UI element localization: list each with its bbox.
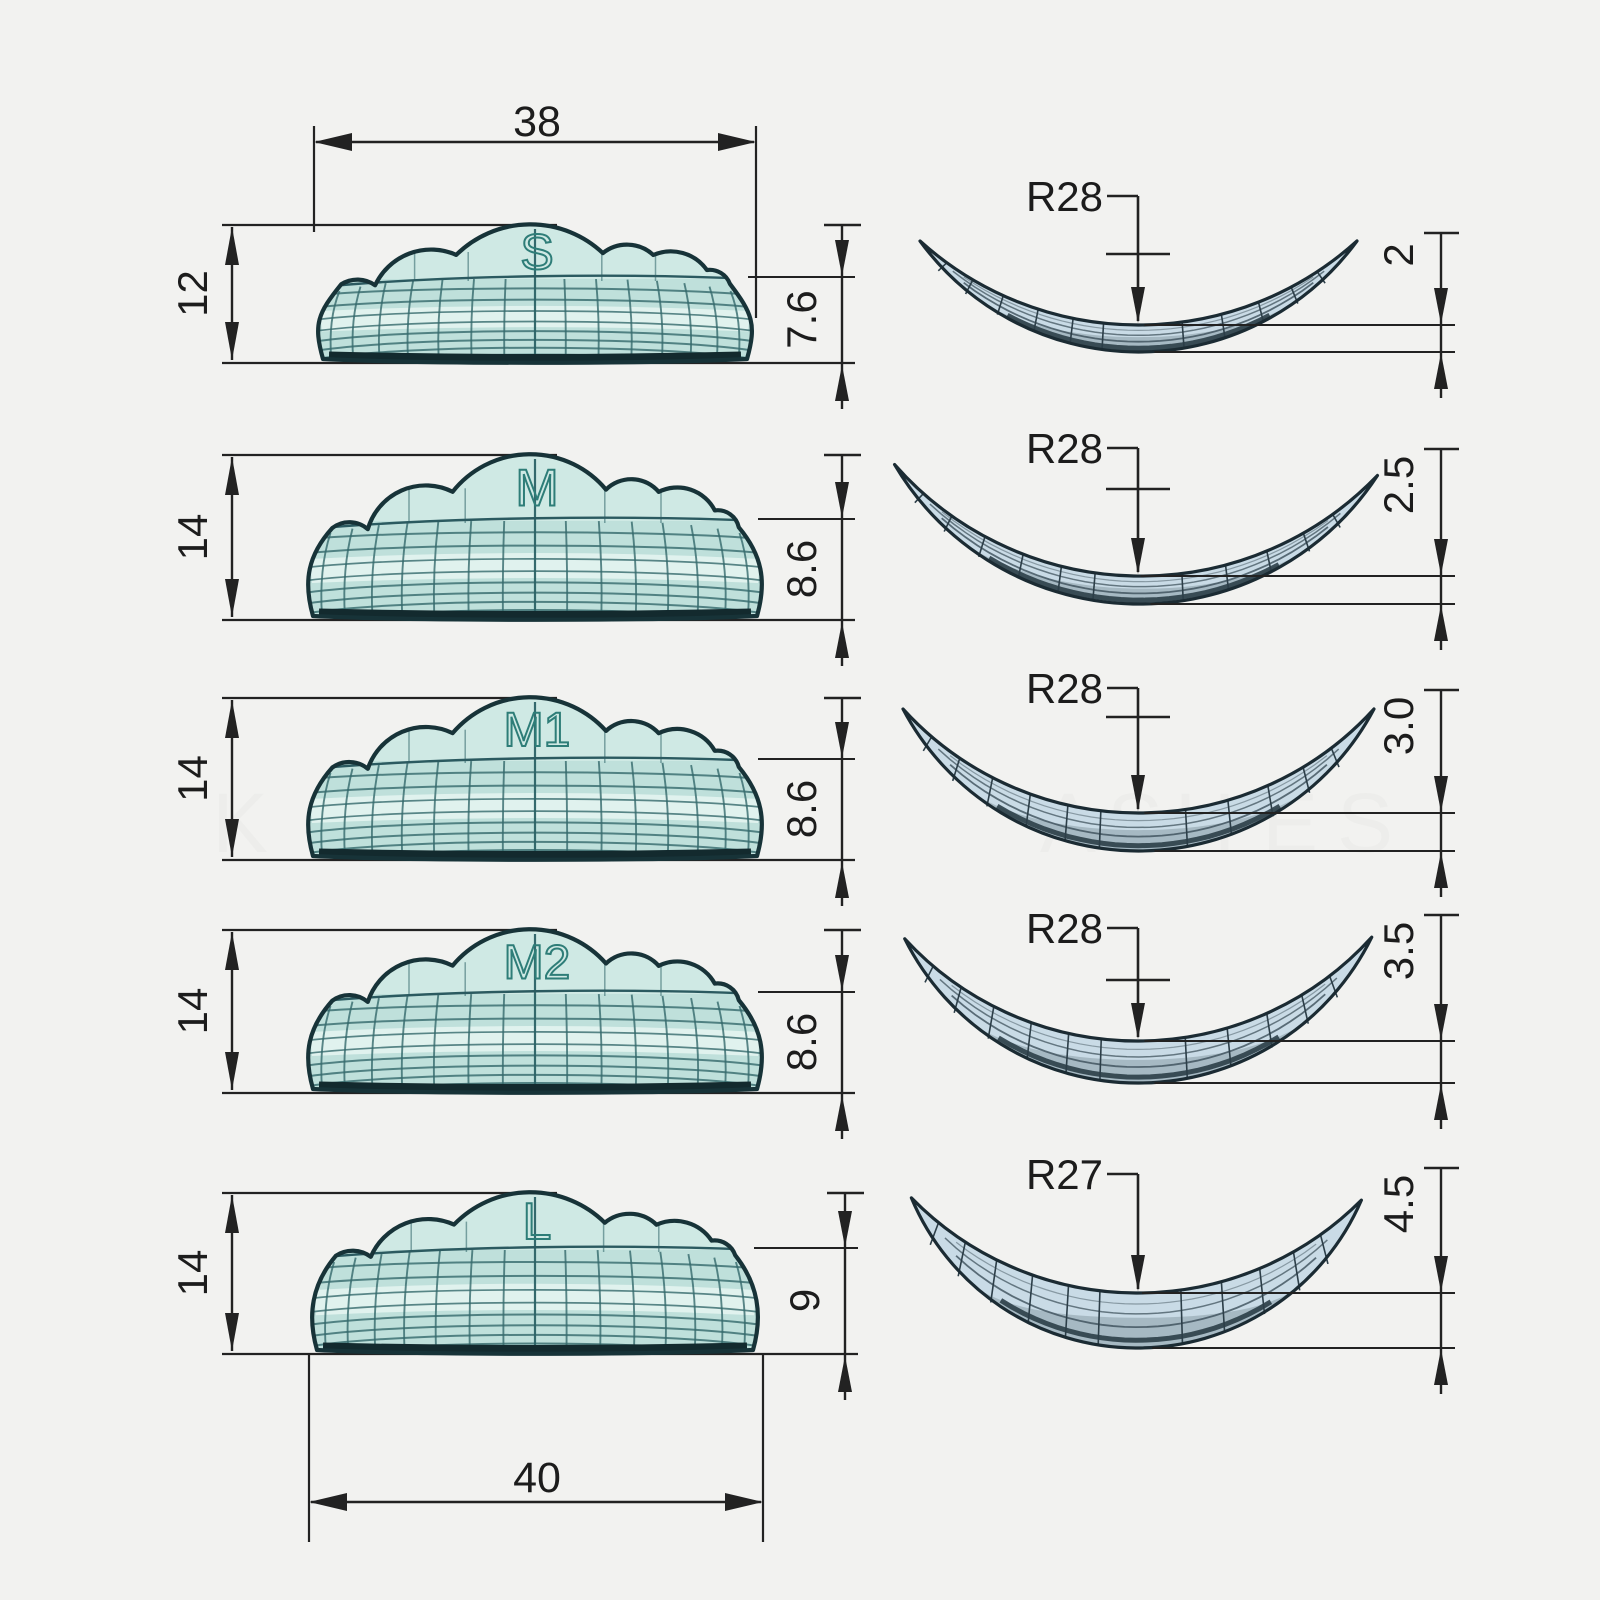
svg-text:S: S [1337, 776, 1393, 870]
svg-text:8.6: 8.6 [778, 1013, 825, 1071]
svg-text:K: K [212, 776, 268, 870]
svg-text:14: 14 [169, 514, 216, 561]
svg-text:7.6: 7.6 [778, 290, 825, 348]
svg-text:3.0: 3.0 [1375, 697, 1422, 755]
svg-text:14: 14 [169, 755, 216, 802]
svg-text:2.5: 2.5 [1375, 456, 1422, 514]
svg-text:S: S [520, 224, 553, 280]
svg-text:R28: R28 [1026, 905, 1103, 952]
svg-text:M2: M2 [504, 936, 571, 989]
svg-text:M: M [515, 460, 558, 518]
svg-text:R27: R27 [1026, 1151, 1103, 1198]
svg-text:8.6: 8.6 [778, 780, 825, 838]
svg-text:L: L [523, 1193, 552, 1251]
svg-text:4.5: 4.5 [1375, 1175, 1422, 1233]
svg-text:2: 2 [1375, 243, 1422, 266]
svg-text:R28: R28 [1026, 665, 1103, 712]
svg-text:M1: M1 [504, 704, 571, 757]
svg-text:38: 38 [513, 98, 561, 146]
svg-text:R28: R28 [1026, 173, 1103, 220]
svg-text:R28: R28 [1026, 425, 1103, 472]
svg-text:40: 40 [513, 1454, 561, 1502]
svg-text:14: 14 [169, 1250, 216, 1297]
svg-text:14: 14 [169, 988, 216, 1035]
svg-text:8.6: 8.6 [778, 540, 825, 598]
svg-text:12: 12 [169, 270, 216, 317]
svg-text:3.5: 3.5 [1375, 922, 1422, 980]
svg-text:9: 9 [781, 1289, 828, 1312]
